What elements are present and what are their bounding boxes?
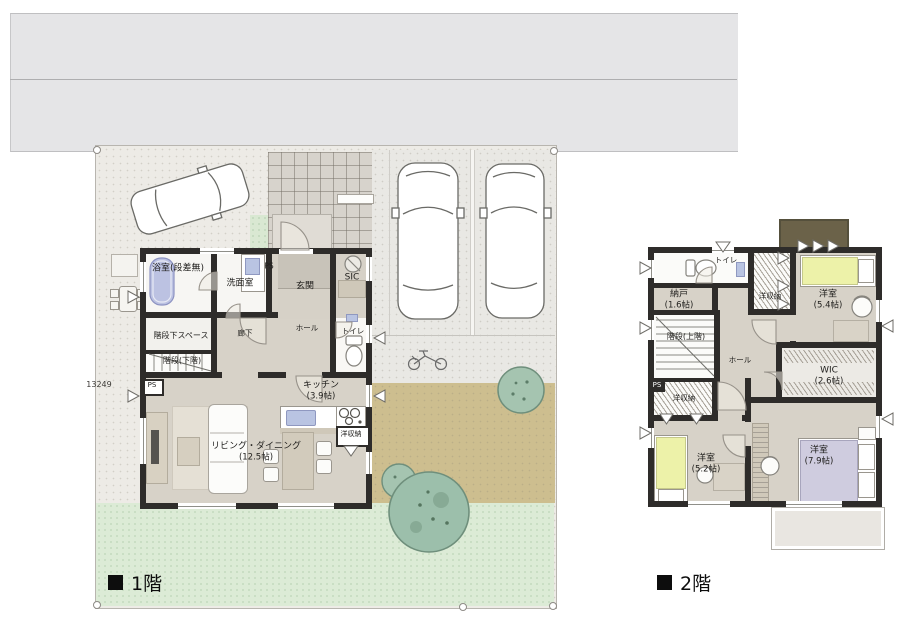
wall (714, 310, 720, 378)
door-gap (718, 415, 742, 421)
f2-closet-top-floor (754, 253, 790, 309)
f1-label-stairs: 階段(下階) (163, 356, 201, 366)
wic-rack-top (784, 350, 874, 363)
wall (776, 342, 782, 403)
wall (146, 350, 211, 354)
floor2-caption: 2階 (657, 569, 711, 596)
room-name: 洋室 (814, 290, 843, 301)
dimension-value: 13249 (86, 380, 111, 389)
wall (751, 397, 782, 403)
f1-bath-floor (146, 252, 211, 312)
wall (876, 247, 882, 507)
window (876, 300, 882, 322)
room-size: (7.9帖) (805, 456, 834, 466)
parking-line-h (372, 335, 555, 336)
room-name: 洋室 (692, 454, 721, 465)
f2-stairs-floor (654, 315, 714, 378)
room-size: (2.6帖) (815, 376, 844, 386)
room-name: PS (264, 262, 273, 271)
f2-label-wic: WIC(2.6帖) (815, 366, 844, 387)
parking-concrete (372, 150, 555, 383)
wall (322, 372, 372, 378)
f1-label-sic: SIC (345, 273, 360, 284)
vanity-sink (245, 258, 260, 275)
room-name: 階段(下階) (163, 356, 201, 366)
garden-chair (110, 301, 119, 310)
toilet-handwash (346, 314, 358, 322)
porch-step (337, 194, 374, 204)
door-gap (790, 315, 796, 341)
f1-label-hall: ホール (296, 324, 319, 333)
room-name: ホール (729, 356, 752, 365)
door-gap (279, 249, 313, 254)
room-name: 階段下スペース (153, 331, 208, 341)
toilet2-handwash (736, 262, 745, 277)
garden-chair (110, 289, 119, 298)
wall (654, 283, 748, 288)
wall (211, 252, 217, 314)
f2-label-closet-left: 洋収納 (673, 394, 696, 403)
f1-label-living: リビング・ダイニング(12.5帖) (211, 442, 301, 463)
road (10, 13, 738, 152)
dimension-label: 13249 (86, 380, 111, 390)
floorplan-canvas: 13249 (0, 0, 900, 642)
room-name: PS (653, 381, 662, 389)
floor2-caption-text: 2階 (680, 569, 711, 596)
dining-chair (316, 459, 332, 474)
window (140, 418, 146, 464)
room-name: WIC (815, 366, 844, 377)
square-bullet-icon (657, 575, 672, 590)
window (688, 501, 730, 507)
window (366, 325, 372, 343)
closet-strip (752, 423, 769, 503)
f2-label-bedroom-c: 洋室(7.9帖) (805, 446, 834, 467)
room-name: 洋収納 (341, 430, 362, 438)
parking-divider (470, 150, 475, 335)
room-name: 洗面室 (226, 279, 253, 290)
window (786, 501, 842, 507)
room-name: トイレ (342, 327, 365, 336)
f1-label-genkan: 玄関 (296, 282, 314, 293)
room-name: 洋収納 (759, 292, 782, 301)
bed-pillow (858, 472, 875, 498)
window (712, 247, 734, 253)
f1-genkan-step (278, 288, 330, 319)
room-name: 階段(上階) (667, 332, 705, 342)
room-name: ホール (296, 324, 319, 333)
f1-label-understairs: 階段下スペース (153, 331, 208, 341)
room-name: PS (148, 381, 157, 389)
bed-pillow (858, 444, 875, 470)
green-patch (250, 215, 268, 248)
f2-label-storage: 納戸(1.6帖) (665, 290, 694, 311)
garden-table (119, 286, 137, 312)
porch-tile (272, 214, 332, 250)
tv (151, 430, 159, 464)
wall (776, 342, 882, 348)
square-bullet-icon (108, 575, 123, 590)
window (366, 257, 372, 281)
wall (648, 501, 882, 507)
wall (776, 397, 882, 403)
room-size: (12.5帖) (211, 452, 301, 462)
window (366, 452, 372, 474)
f1-label-ps-box: PS (148, 381, 157, 389)
f2-label-closet-top: 洋収納 (759, 292, 782, 301)
wall (748, 309, 796, 315)
floor1-caption: 1階 (108, 569, 162, 596)
f1-label-bath: 浴室(段差無) (152, 264, 204, 275)
f1-label-wash: 洗面室 (226, 279, 253, 290)
room-name: 洋収納 (673, 394, 696, 403)
dirt-yard (372, 383, 555, 503)
room-name: 納戸 (665, 290, 694, 301)
bed-pillow (858, 259, 874, 283)
window (648, 260, 654, 278)
bed-mattress-yellow (656, 437, 686, 489)
f1-label-toilet: トイレ (342, 327, 365, 336)
window (648, 428, 654, 448)
room-name: 玄関 (296, 282, 314, 293)
wall (330, 252, 336, 318)
window (278, 503, 334, 509)
parking-edge (389, 150, 390, 335)
f2-label-bedroom-b: 洋室(5.2帖) (692, 454, 721, 475)
bed-mattress-yellow (802, 257, 858, 285)
road-center-line (10, 79, 737, 80)
wall (648, 310, 718, 315)
room-name: リビング・ダイニング (211, 442, 301, 453)
lawn (96, 503, 554, 606)
f2-label-ps-box: PS (653, 381, 662, 389)
f2-label-bedroom-a: 洋室(5.4帖) (814, 290, 843, 311)
side-table (858, 427, 876, 440)
wall (211, 318, 217, 376)
window (140, 262, 146, 292)
room-name: 廊下 (238, 329, 253, 338)
floor1-caption-text: 1階 (131, 569, 162, 596)
f1-label-closet: 洋収納 (341, 430, 362, 438)
f2-label-hall: ホール (729, 356, 752, 365)
wall (712, 378, 718, 418)
dining-chair (263, 467, 279, 482)
f2-label-toilet: トイレ (715, 256, 738, 265)
window (200, 248, 234, 254)
wall (258, 372, 286, 378)
f1-label-corridor: 廊下 (238, 329, 253, 338)
balcony (771, 507, 885, 550)
room-name: 浴室(段差無) (152, 264, 204, 275)
wall (146, 372, 222, 378)
coffee-table (177, 437, 200, 466)
room-name: トイレ (715, 256, 738, 265)
window (178, 503, 236, 509)
room-size: (5.4帖) (814, 300, 843, 310)
desk (833, 320, 869, 342)
door-gap (745, 422, 751, 446)
f1-label-ps: PS (264, 262, 273, 271)
wall (748, 253, 754, 315)
room-name: キッチン (303, 381, 339, 392)
outdoor-pad (111, 254, 138, 277)
window (366, 385, 372, 407)
room-name: 洋室 (805, 446, 834, 457)
dining-chair (316, 441, 332, 456)
wall (140, 248, 372, 254)
room-size: (3.9帖) (303, 391, 339, 401)
room-name: SIC (345, 273, 360, 284)
window (648, 320, 654, 340)
f2-label-stairs: 階段(上階) (667, 332, 705, 342)
room-size: (1.6帖) (665, 300, 694, 310)
wall (330, 318, 336, 375)
f1-label-kitchen: キッチン(3.9帖) (303, 381, 339, 402)
wall (648, 247, 882, 253)
kitchen-sink (286, 410, 316, 426)
room-size: (5.2帖) (692, 464, 721, 474)
wall (140, 503, 372, 509)
window (876, 416, 882, 438)
